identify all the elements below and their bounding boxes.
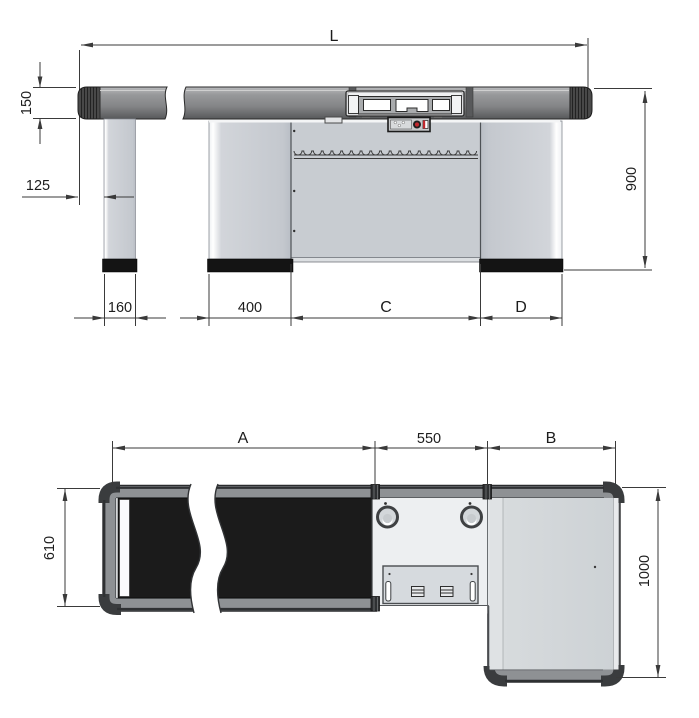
dim-label-B: B (546, 430, 557, 447)
dim-label-900: 900 (624, 167, 640, 191)
dimension-end-depth: 1000 (616, 488, 666, 678)
clip-body (412, 587, 425, 597)
center-panel-bottom-strip (291, 258, 481, 263)
dimension-rail-height: 150 (19, 62, 76, 144)
body-top-highlight (209, 120, 560, 123)
checkout-display-unit (346, 91, 464, 118)
end-section-dot (594, 566, 596, 568)
end-section-panel (503, 498, 614, 670)
rib-block (483, 485, 492, 500)
dim-label-125: 125 (26, 178, 50, 194)
dimension-counter-depth: 610 (42, 489, 100, 607)
dim-label-1000: 1000 (637, 555, 653, 587)
display-window-right (433, 100, 450, 111)
right-cabinet-panel (481, 121, 563, 259)
dim-label-160: 160 (108, 300, 132, 316)
left-conveyor-end (78, 87, 167, 272)
right-cabinet-base (480, 259, 564, 272)
key-switch-red (423, 121, 425, 129)
display-top-strip (348, 93, 462, 97)
notch-whiteout (377, 606, 488, 614)
main-counter-body (183, 87, 592, 272)
arrowheads (38, 77, 43, 130)
left-leg (104, 119, 136, 259)
dimension-top-chain: A 550 B (113, 430, 616, 486)
dimension-lines (33, 62, 76, 144)
dim-label-150: 150 (19, 91, 35, 115)
end-section-right-strip (614, 498, 619, 670)
left-cabinet-panel (209, 121, 291, 259)
display-end-block-right (452, 96, 462, 114)
dim-label-C: C (380, 299, 392, 316)
dim-label-L: L (330, 28, 339, 45)
tray-slot-right (470, 582, 475, 602)
grommet-inner (467, 514, 476, 523)
tray-slot-left (386, 582, 391, 602)
top-plan-view: A 550 B 610 1000 (42, 430, 666, 682)
front-elevation-view: L (19, 28, 652, 326)
technical-drawing-canvas: L (0, 0, 699, 718)
display-end-block-left (349, 96, 359, 114)
rib-block (371, 485, 380, 500)
center-panel (291, 121, 481, 261)
keyboard-tray (383, 566, 478, 604)
dim-label-400: 400 (238, 300, 262, 316)
belt-end-roller-strip (120, 500, 130, 597)
rail-rib-right-of-display (466, 87, 473, 117)
small-latch (325, 117, 342, 123)
rib-block (371, 597, 380, 612)
tray-clip-left (412, 587, 425, 597)
emergency-button (415, 122, 419, 126)
checkout-counter-drawing: L (0, 0, 699, 718)
control-panel (388, 118, 430, 132)
grommet-inner (383, 514, 392, 523)
left-cabinet-base (208, 259, 294, 272)
left-leg-base (103, 259, 138, 272)
display-window-left (364, 100, 391, 111)
dim-label-D: D (515, 299, 527, 316)
tray-panel (383, 566, 478, 604)
tray-clip-right (441, 587, 454, 597)
conveyor-belt (118, 498, 372, 598)
dimension-lines (57, 489, 100, 607)
dim-label-610: 610 (42, 536, 58, 560)
dimension-bottom-chain: 160 400 C D (74, 264, 562, 326)
rail-segment (100, 87, 167, 119)
dim-label-550: 550 (417, 431, 441, 447)
control-keypad (391, 120, 412, 129)
dim-label-A: A (238, 430, 249, 447)
clip-body (441, 587, 454, 597)
grommet-dot (469, 502, 472, 505)
grommet-dot (384, 502, 387, 505)
